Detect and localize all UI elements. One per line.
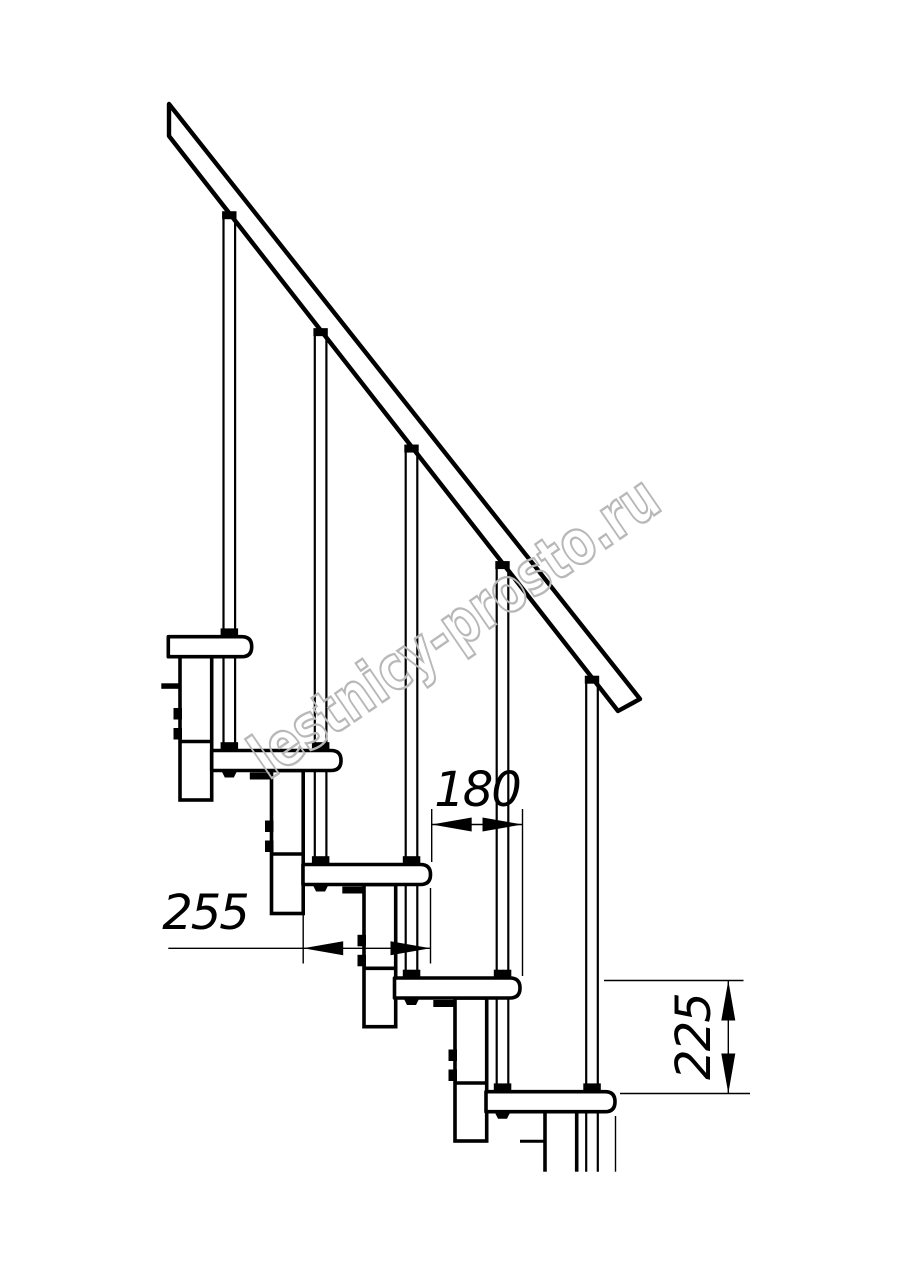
dimension-arrow — [721, 981, 735, 1021]
baluster-collar — [583, 1083, 601, 1091]
watermark-text: lestnicy-prosto.ru — [236, 461, 673, 793]
baluster-collar — [221, 628, 239, 636]
baluster-rail-cap — [313, 328, 327, 336]
dimension-arrow — [432, 818, 472, 832]
dimension-label-step-rise: 225 — [666, 994, 722, 1080]
tread — [395, 978, 521, 998]
support-column — [364, 885, 396, 1027]
staircase-side-view-drawing: 255 180 225 lestnicy-prosto.ru — [0, 0, 914, 1280]
bolt — [174, 728, 183, 740]
baluster-foot — [494, 1083, 512, 1091]
tread — [168, 637, 251, 657]
bolt — [358, 935, 367, 947]
baluster-foot — [403, 970, 421, 978]
dimension-label-step-run: 180 — [434, 762, 520, 818]
bolt — [449, 1070, 458, 1082]
bolt — [174, 708, 183, 720]
bracket-plate — [433, 1000, 455, 1007]
tread — [303, 865, 431, 885]
baluster-collar — [494, 970, 512, 978]
baluster-collar — [403, 856, 421, 864]
baluster-foot — [221, 742, 239, 750]
bracket-plate — [342, 887, 364, 894]
tread — [486, 1092, 615, 1112]
baluster-rail-cap — [222, 211, 236, 219]
bracket-plate — [161, 683, 180, 689]
baluster-rail-cap — [585, 676, 599, 684]
drawing-page: 255 180 225 lestnicy-prosto.ru — [0, 0, 914, 1280]
bolt — [358, 955, 367, 967]
baluster-rail-cap — [404, 445, 418, 453]
baluster-foot — [312, 856, 330, 864]
dimension-arrow — [303, 941, 343, 955]
bolt — [265, 821, 274, 833]
support-column — [455, 998, 487, 1141]
bolt — [449, 1050, 458, 1062]
support-column — [180, 657, 212, 800]
dimension-label-tread-depth: 255 — [162, 885, 248, 941]
bolt — [265, 841, 274, 853]
dimension-arrow — [483, 818, 523, 832]
baluster-nut — [495, 1112, 511, 1119]
dimension-arrow — [391, 941, 431, 955]
baluster-nut — [404, 998, 420, 1005]
baluster-nut — [221, 771, 237, 778]
dimension-arrow — [721, 1054, 735, 1094]
baluster-nut — [313, 885, 329, 892]
